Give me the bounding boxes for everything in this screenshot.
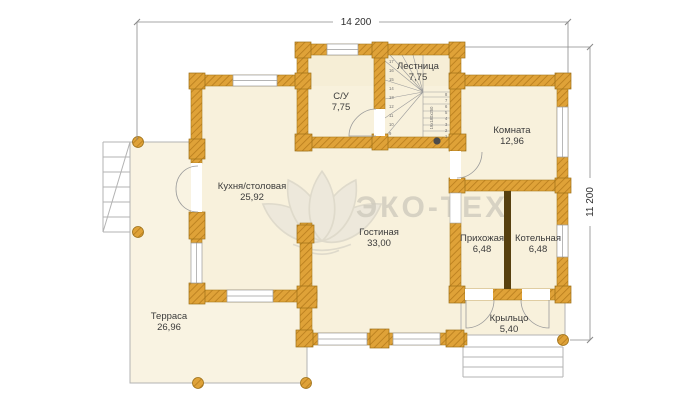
door-opening-kitchen-terrace bbox=[191, 163, 202, 212]
svg-text:С/У: С/У bbox=[333, 91, 350, 102]
svg-text:7,75: 7,75 bbox=[332, 102, 351, 113]
svg-text:6,48: 6,48 bbox=[529, 244, 548, 255]
svg-text:12: 12 bbox=[389, 104, 394, 109]
svg-text:15: 15 bbox=[389, 77, 394, 82]
door-opening-porch-b bbox=[522, 289, 550, 300]
svg-text:12,96: 12,96 bbox=[500, 136, 524, 147]
wall-room-top bbox=[452, 75, 568, 86]
door-opening-bathroom bbox=[374, 109, 385, 136]
svg-text:Кухня/столовая: Кухня/столовая bbox=[218, 181, 286, 192]
svg-text:10: 10 bbox=[389, 122, 394, 127]
wall-hallway-boiler-partition bbox=[504, 191, 511, 289]
dimension-height-label: 11 200 bbox=[585, 187, 596, 217]
svg-text:26,96: 26,96 bbox=[157, 322, 181, 333]
svg-text:11: 11 bbox=[389, 113, 394, 118]
stair-newel-post bbox=[433, 137, 440, 144]
svg-text:16: 16 bbox=[389, 68, 394, 73]
floor-plan-drawing: ЭКО-ТЕХ bbox=[0, 0, 700, 407]
svg-text:5,40: 5,40 bbox=[500, 324, 519, 335]
svg-text:Котельная: Котельная bbox=[515, 233, 561, 244]
svg-text:Лестница: Лестница bbox=[397, 61, 440, 72]
room-label-bathroom: С/У 7,75 bbox=[332, 91, 351, 113]
svg-text:13: 13 bbox=[389, 95, 394, 100]
svg-text:Комната: Комната bbox=[493, 125, 531, 136]
svg-text:7,75: 7,75 bbox=[409, 72, 428, 83]
dimension-width-label: 14 200 bbox=[341, 17, 372, 28]
door-opening-hallway bbox=[450, 193, 461, 223]
svg-text:25,92: 25,92 bbox=[240, 192, 264, 203]
watermark-text: ЭКО-ТЕХ bbox=[356, 191, 508, 224]
svg-text:Терраса: Терраса bbox=[151, 311, 188, 322]
door-opening-porch-a bbox=[465, 289, 493, 300]
svg-text:Крыльцо: Крыльцо bbox=[490, 313, 529, 324]
wall-room-bottom bbox=[450, 180, 568, 191]
svg-text:17: 17 bbox=[389, 59, 394, 64]
svg-text:6,48: 6,48 bbox=[473, 244, 492, 255]
svg-text:33,00: 33,00 bbox=[367, 238, 391, 249]
svg-text:Прихожая: Прихожая bbox=[460, 233, 504, 244]
door-opening-room bbox=[450, 151, 461, 179]
stair-dimensions-note: 19x180x250 bbox=[429, 106, 434, 129]
floor-plan-sheet: ЭКО-ТЕХ bbox=[0, 0, 700, 407]
svg-text:Гостиная: Гостиная bbox=[359, 227, 399, 238]
svg-text:14: 14 bbox=[389, 86, 394, 91]
